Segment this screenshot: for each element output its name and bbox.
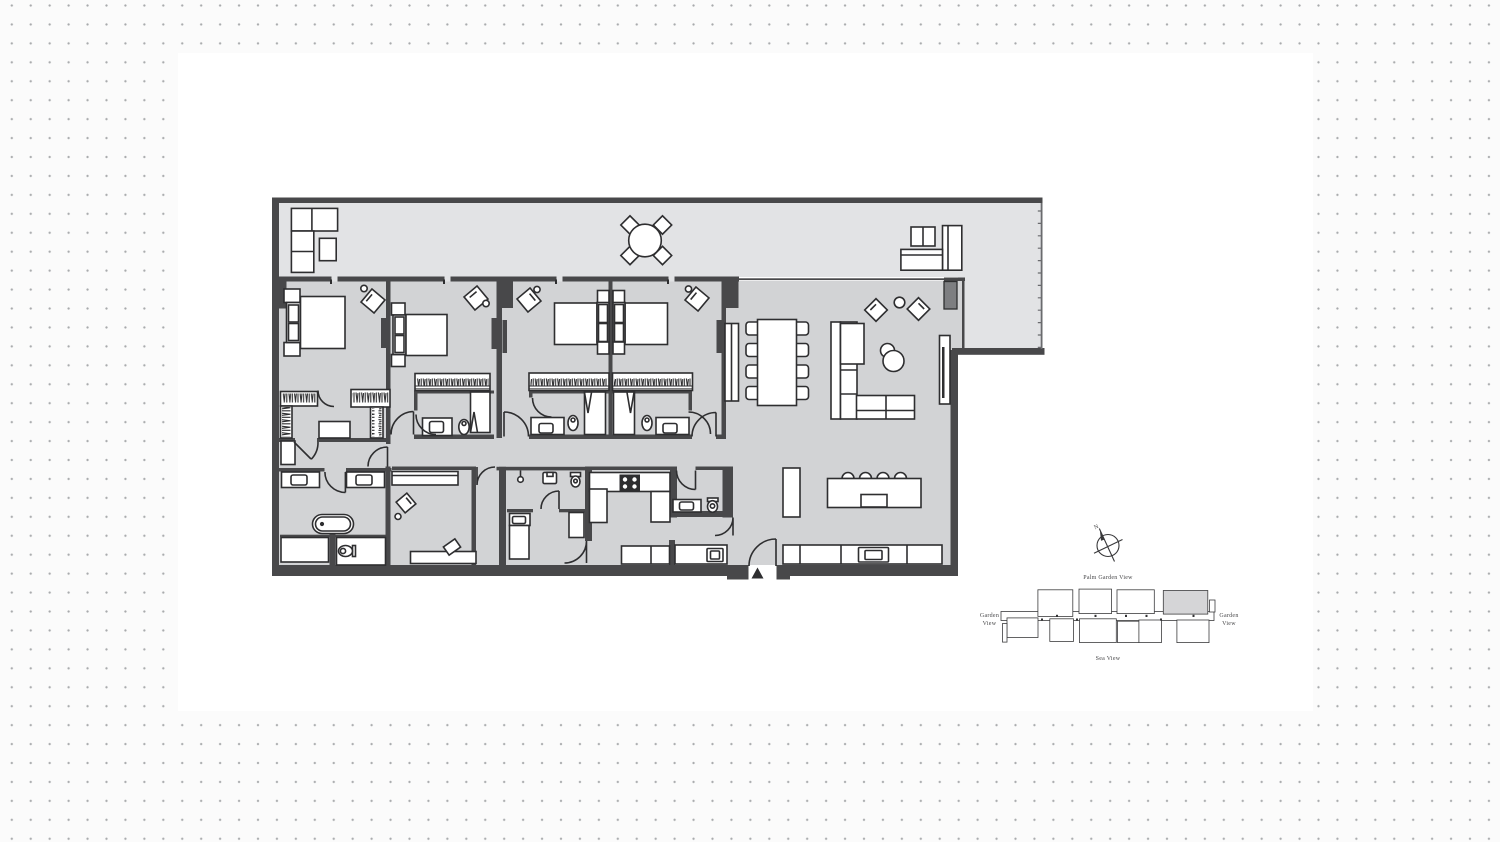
svg-text:View: View	[983, 621, 997, 627]
svg-text:View: View	[1222, 621, 1236, 627]
svg-text:N: N	[1093, 524, 1100, 532]
svg-text:Garden: Garden	[1219, 613, 1238, 619]
svg-text:Sea View: Sea View	[1096, 656, 1121, 662]
svg-text:Palm Garden View: Palm Garden View	[1083, 575, 1133, 581]
svg-text:Garden: Garden	[980, 613, 999, 619]
